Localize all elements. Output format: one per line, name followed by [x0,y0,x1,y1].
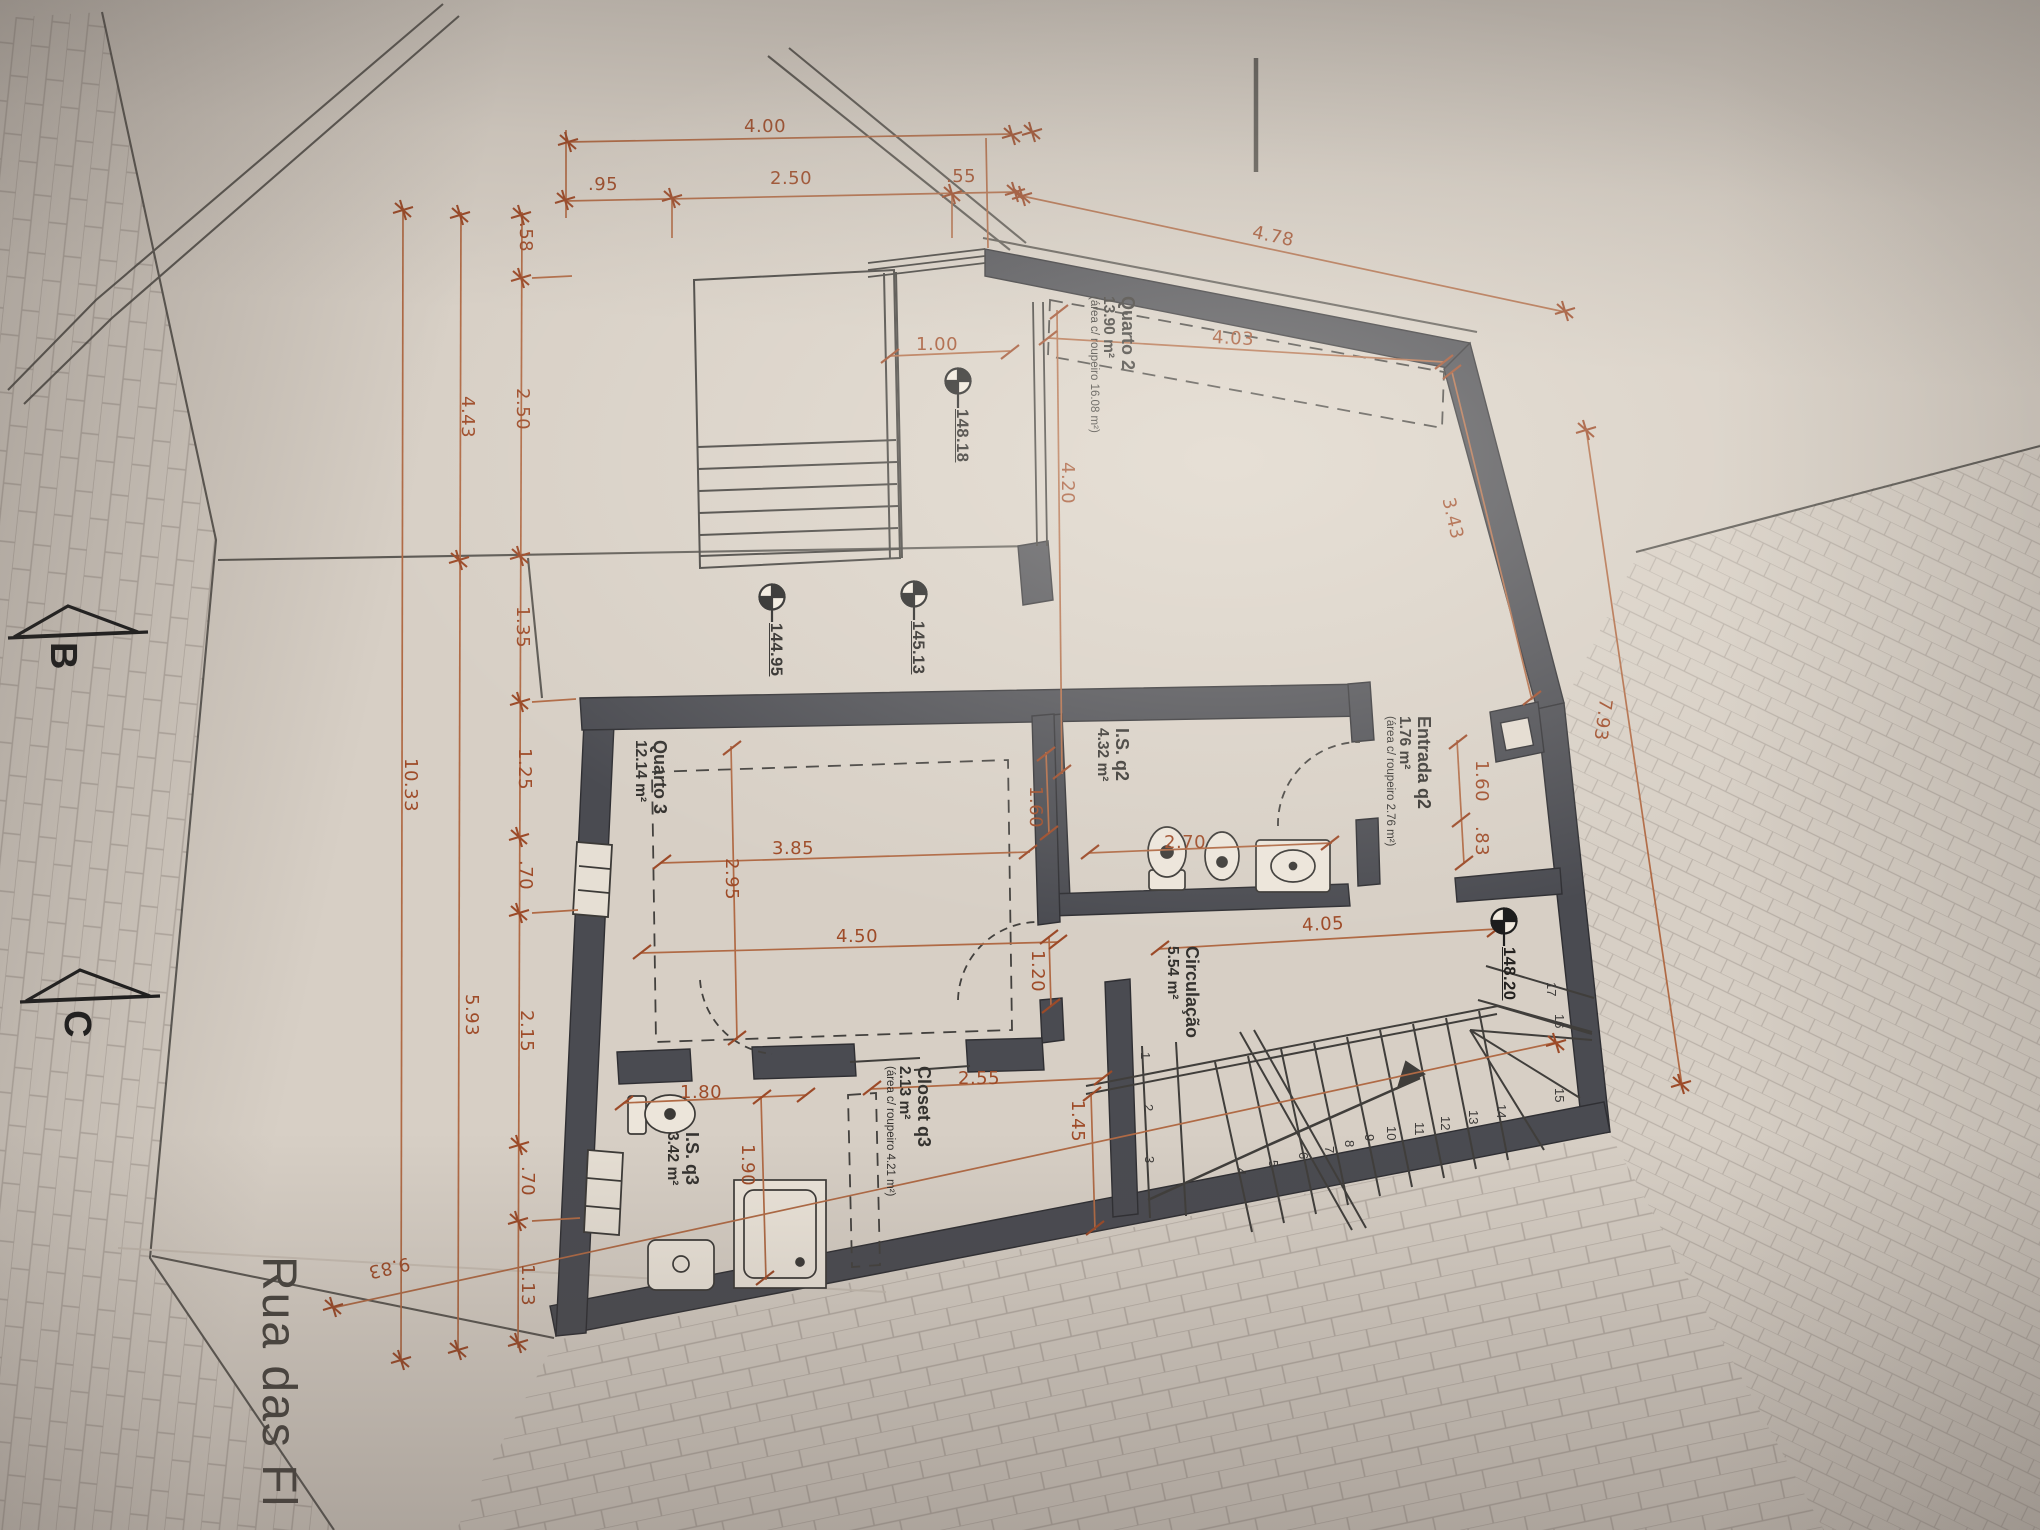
street-name: Rua das Fl [254,1256,302,1508]
dim-left-pair-0: 4.43 [458,396,476,438]
stair-num-15: 15 [1553,1088,1566,1102]
dim-left-chain-7: 1.13 [518,1264,536,1306]
room-label-quarto2: Quarto 2 13.90 m² (área c/ roupeiro 16.0… [1087,296,1138,433]
dim-top-total: 4.00 [744,118,786,136]
wall-closet-band-3 [966,1038,1044,1072]
stair-num-4: 4 [1235,1168,1248,1175]
room-area: 5.54 m² [1164,946,1182,1038]
room-note: (área c/ roupeiro 4.21 m²) [883,1066,896,1196]
dim-left-chain-6: .70 [518,1166,536,1196]
room-label-isq2: I.S. q2 4.32 m² [1094,728,1132,781]
wall-stair-west [1105,979,1138,1217]
room-label-closet-q3: Closet q3 2.13 m² (área c/ roupeiro 4.21… [883,1066,934,1196]
dim-left-chain-2: 1.35 [513,606,531,648]
dim-isq2-height: 1.60 [1026,786,1044,828]
wall-closet-band-2 [752,1044,856,1079]
floor-plan-photo: 4.00 .95 2.50 .55 4.78 10.33 4.43 5.93 .… [0,0,2040,1530]
wall-west [556,700,615,1336]
wall-entrada-south [1455,868,1562,902]
dim-top-chain-0: .95 [588,176,618,194]
room-name: Quarto 3 [649,740,670,814]
dim-stair-145: 1.45 [1068,1100,1086,1142]
dim-q2-depth: 4.20 [1058,462,1076,504]
stair-num-9: 9 [1363,1134,1376,1141]
stair-num-7: 7 [1323,1146,1336,1153]
dim-left-chain-5: 2.15 [517,1010,535,1052]
dim-entrada-83: .83 [1472,826,1490,856]
level-marker-148-18 [946,369,971,409]
stair-num-12: 12 [1439,1116,1452,1130]
room-name: I.S. q2 [1111,728,1132,781]
dim-left-chain-0: .58 [516,222,534,252]
level-148-18: 148.18 [954,409,971,462]
room-area: 13.90 m² [1100,296,1118,433]
stair-num-3: 3 [1143,1156,1156,1163]
level-marker-144-95 [760,585,785,623]
site-hatches [0,12,2040,1530]
stair-num-16: 16 [1553,1014,1566,1028]
room-note: (área c/ roupeiro 2.76 m²) [1383,716,1396,846]
room-name: Circulação [1181,946,1202,1038]
dim-left-chain-1: 2.50 [513,388,531,430]
dim-left-pair-1: 5.93 [462,994,480,1036]
stair-num-13: 13 [1467,1110,1480,1124]
dim-circ-120: 1.20 [1028,950,1046,992]
stair-num-8: 8 [1343,1140,1356,1147]
room-label-circulacao: Circulação 5.54 m² [1164,946,1202,1038]
stair-num-6: 6 [1297,1152,1310,1159]
stair-num-17: 17 [1545,982,1558,996]
room-area: 2.13 m² [896,1066,914,1196]
exterior-steps-box [694,270,900,568]
stair-num-14: 14 [1495,1104,1508,1118]
room-label-isq3: I.S. q3 3.42 m² [664,1132,702,1185]
room-area: 12.14 m² [632,740,650,814]
plan-drawing [0,0,2040,1530]
door-arc-isq2 [1278,742,1360,826]
dim-entrada-160: 1.60 [1472,760,1490,802]
room-label-quarto3: Quarto 3 12.14 m² [632,740,670,814]
wall-closet-band-1 [617,1049,692,1084]
wall-porch-stub [1018,541,1053,605]
dim-top-chain-1: 2.50 [770,170,812,188]
room-note: (área c/ roupeiro 16.08 m²) [1087,296,1100,433]
wall-mid-north-band [580,684,1370,730]
dim-left-chain-4: .70 [516,860,534,890]
dim-circ-width: 4.05 [1302,915,1345,935]
stair-num-2: 2 [1142,1104,1155,1111]
dim-isq3-190: 1.90 [738,1144,756,1186]
level-148-20: 148.20 [1501,947,1518,1000]
level-144-95: 144.95 [768,623,785,676]
dim-isq3-180: 1.80 [680,1084,722,1102]
wall-entrada-west-dn [1356,818,1380,886]
level-marker-148-20 [1492,909,1517,947]
dim-closet-255: 2.55 [958,1070,1000,1088]
dim-q3-385: 3.85 [772,840,814,858]
room-name: Closet q3 [913,1066,934,1196]
room-area: 4.32 m² [1094,728,1112,781]
stair-num-10: 10 [1385,1126,1398,1140]
stair-num-5: 5 [1267,1160,1280,1167]
room-name: Quarto 2 [1117,296,1138,433]
door-arc-q3 [958,922,1038,1000]
level-markers [760,369,1517,947]
room-area: 1.76 m² [1396,716,1414,846]
dim-porch-width: 1.00 [916,336,958,354]
dim-isq2-width: 2.70 [1164,834,1206,852]
section-letter-b: B [44,642,82,669]
dim-q3-295: 2.95 [722,858,740,900]
room-name: Entrada q2 [1413,716,1434,846]
bidet-isq2 [1205,832,1239,880]
room-name: I.S. q3 [681,1132,702,1185]
room-label-entrada-q2: Entrada q2 1.76 m² (área c/ roupeiro 2.7… [1383,716,1434,846]
dim-left-chain-3: 1.25 [515,748,533,790]
dim-q2-width: 4.03 [1212,329,1255,349]
dim-left-total: 10.33 [401,758,419,812]
section-letter-c: C [58,1010,96,1037]
level-marker-145-13 [902,582,927,621]
room-area: 3.42 m² [664,1132,682,1185]
wall-entrada-west-up [1348,682,1374,742]
stair-num-11: 11 [1413,1122,1426,1136]
closet-wardrobe-dash [848,1093,880,1267]
dim-right-total: 7.93 [1590,697,1614,741]
stair-num-1: 1 [1139,1052,1152,1059]
dim-q3-450: 4.50 [836,928,878,946]
dim-top-chain-2: .55 [946,168,976,186]
column-window [1501,718,1534,751]
level-145-13: 145.13 [910,621,927,674]
